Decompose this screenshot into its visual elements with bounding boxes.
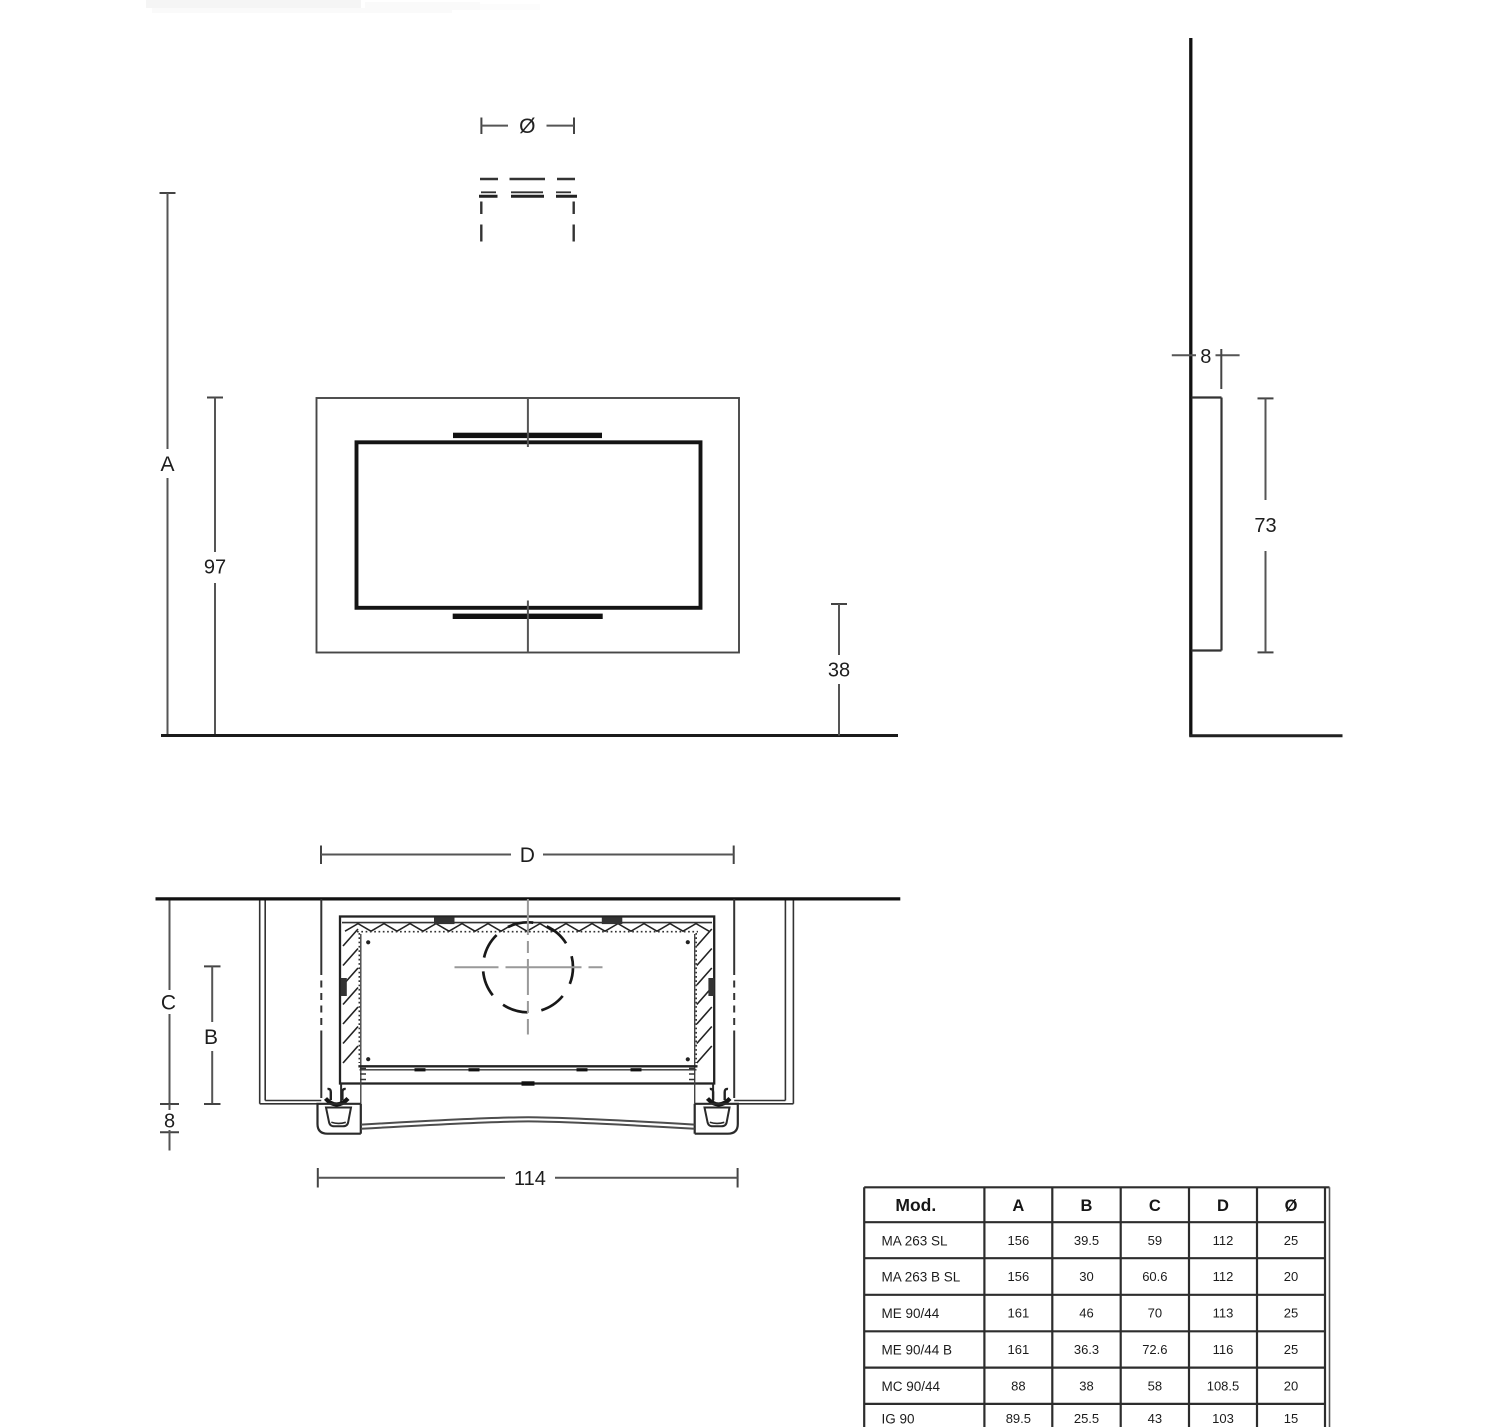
svg-text:B: B [1081, 1197, 1093, 1215]
svg-text:161: 161 [1007, 1342, 1029, 1357]
svg-text:113: 113 [1213, 1306, 1234, 1321]
svg-text:8: 8 [164, 1111, 175, 1133]
svg-text:IG 90: IG 90 [882, 1411, 915, 1426]
svg-text:20: 20 [1284, 1378, 1298, 1393]
svg-text:70: 70 [1148, 1306, 1162, 1321]
svg-text:60.6: 60.6 [1142, 1269, 1167, 1284]
svg-text:112: 112 [1213, 1233, 1234, 1248]
svg-text:25.5: 25.5 [1074, 1411, 1099, 1426]
svg-text:30: 30 [1079, 1269, 1093, 1284]
svg-text:MC 90/44: MC 90/44 [882, 1379, 941, 1394]
svg-text:58: 58 [1148, 1378, 1162, 1393]
svg-text:20: 20 [1284, 1269, 1298, 1284]
svg-text:MA 263 SL: MA 263 SL [882, 1233, 949, 1248]
svg-text:156: 156 [1007, 1269, 1029, 1284]
svg-text:25: 25 [1284, 1233, 1298, 1248]
svg-text:15: 15 [1284, 1411, 1298, 1426]
svg-text:A: A [160, 453, 174, 476]
svg-text:89.5: 89.5 [1006, 1411, 1031, 1426]
svg-text:38: 38 [828, 660, 850, 682]
svg-text:ME 90/44 B: ME 90/44 B [882, 1343, 953, 1358]
svg-text:88: 88 [1011, 1378, 1025, 1393]
svg-text:Mod.: Mod. [895, 1195, 936, 1215]
svg-text:108.5: 108.5 [1207, 1378, 1240, 1393]
svg-text:25: 25 [1284, 1306, 1298, 1321]
svg-text:Ø: Ø [1285, 1197, 1298, 1215]
svg-text:38: 38 [1079, 1378, 1093, 1393]
svg-text:MA 263 B SL: MA 263 B SL [882, 1269, 961, 1284]
svg-text:D: D [520, 844, 535, 867]
svg-text:156: 156 [1007, 1233, 1029, 1248]
svg-text:161: 161 [1007, 1306, 1029, 1321]
svg-text:8: 8 [1200, 346, 1211, 368]
svg-text:36.3: 36.3 [1074, 1342, 1099, 1357]
svg-text:25: 25 [1284, 1342, 1298, 1357]
svg-text:103: 103 [1212, 1411, 1234, 1426]
svg-text:D: D [1217, 1197, 1229, 1215]
svg-text:C: C [1149, 1197, 1161, 1215]
svg-text:59: 59 [1148, 1233, 1162, 1248]
svg-text:73: 73 [1254, 515, 1276, 537]
svg-text:43: 43 [1148, 1411, 1162, 1426]
svg-text:C: C [161, 992, 176, 1015]
svg-text:39.5: 39.5 [1074, 1233, 1099, 1248]
svg-text:A: A [1012, 1197, 1024, 1215]
svg-text:B: B [204, 1026, 218, 1049]
svg-text:72.6: 72.6 [1142, 1342, 1167, 1357]
svg-text:116: 116 [1213, 1342, 1234, 1357]
svg-text:114: 114 [514, 1168, 546, 1190]
svg-text:ME 90/44: ME 90/44 [882, 1306, 940, 1321]
svg-text:97: 97 [204, 557, 226, 579]
svg-text:Ø: Ø [519, 115, 535, 138]
svg-text:112: 112 [1213, 1269, 1234, 1284]
svg-text:46: 46 [1079, 1306, 1093, 1321]
